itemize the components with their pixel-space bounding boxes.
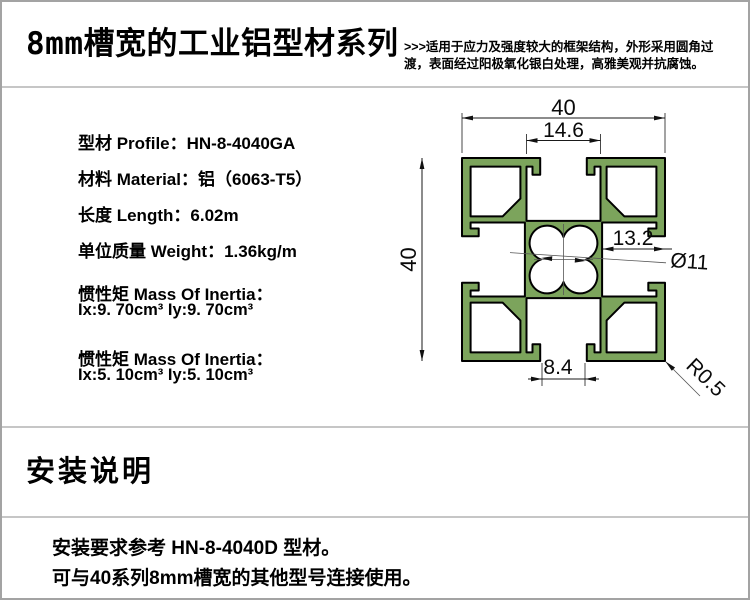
spec-row-material: 材料 Material：铝（6063-T5） bbox=[78, 165, 312, 190]
inertia-value-1: Ix:9. 70cm³ Iy:9. 70cm³ bbox=[78, 301, 253, 320]
spec-value-weight: 1.36kg/m bbox=[224, 242, 297, 261]
dim-corner-radius-label: R0.5 bbox=[682, 354, 730, 401]
title-size-prefix: 8mm bbox=[26, 26, 84, 62]
install-note-line-1: 安装要求参考 HN-8-4040D 型材。 bbox=[52, 533, 340, 560]
spec-row-weight: 单位质量 Weight：1.36kg/m bbox=[78, 237, 297, 262]
dim-top-slot-width: 14.6 bbox=[527, 119, 601, 154]
install-note-line-2: 可与40系列8mm槽宽的其他型号连接使用。 bbox=[52, 563, 422, 590]
spec-label-weight: 单位质量 Weight： bbox=[78, 242, 224, 261]
spec-label-length: 长度 Length： bbox=[78, 206, 190, 225]
install-section-divider-bottom bbox=[2, 516, 750, 518]
spec-sheet-page: 8mm槽宽的工业铝型材系列 >>>适用于应力及强度较大的框架结构，外形采用圆角过… bbox=[0, 0, 750, 600]
description-line-2: 渡，表面经过阳极氧化银白处理，高雅美观并抗腐蚀。 bbox=[404, 56, 750, 73]
spec-row-length: 长度 Length：6.02m bbox=[78, 201, 239, 226]
spec-label-material: 材料 Material： bbox=[78, 170, 198, 189]
page-title: 8mm槽宽的工业铝型材系列 bbox=[26, 18, 399, 63]
spec-value-profile: HN-8-4040GA bbox=[187, 134, 296, 153]
spec-row-profile: 型材 Profile：HN-8-4040GA bbox=[78, 129, 295, 154]
description-line-1: >>>适用于应力及强度较大的框架结构，外形采用圆角过 bbox=[404, 39, 750, 56]
header-description: >>>适用于应力及强度较大的框架结构，外形采用圆角过 渡，表面经过阳极氧化银白处… bbox=[404, 39, 750, 73]
dim-top-slot-label: 14.6 bbox=[543, 119, 584, 142]
install-heading: 安装说明 bbox=[26, 448, 154, 490]
spec-label-profile: 型材 Profile： bbox=[78, 134, 187, 153]
dim-left-height: 40 bbox=[400, 158, 424, 361]
header-divider bbox=[2, 86, 750, 88]
dim-center-bore-label: Ø11 bbox=[670, 249, 710, 275]
dim-side-depth-label: 13.2 bbox=[613, 227, 654, 250]
spec-value-material: 铝（6063-T5） bbox=[198, 170, 312, 189]
inertia-value-2: Ix:5. 10cm³ Iy:5. 10cm³ bbox=[78, 366, 253, 385]
dim-top-width-label: 40 bbox=[551, 95, 575, 120]
dim-left-height-label: 40 bbox=[400, 247, 421, 271]
title-main-text: 槽宽的工业铝型材系列 bbox=[84, 26, 399, 61]
dim-bottom-slot-label: 8.4 bbox=[543, 356, 573, 379]
profile-cross-section-drawing: 40 14.6 40 13.2 bbox=[400, 94, 748, 426]
install-section-divider-top bbox=[2, 426, 750, 428]
dim-corner-radius: R0.5 bbox=[666, 354, 730, 401]
spec-value-length: 6.02m bbox=[190, 206, 238, 225]
